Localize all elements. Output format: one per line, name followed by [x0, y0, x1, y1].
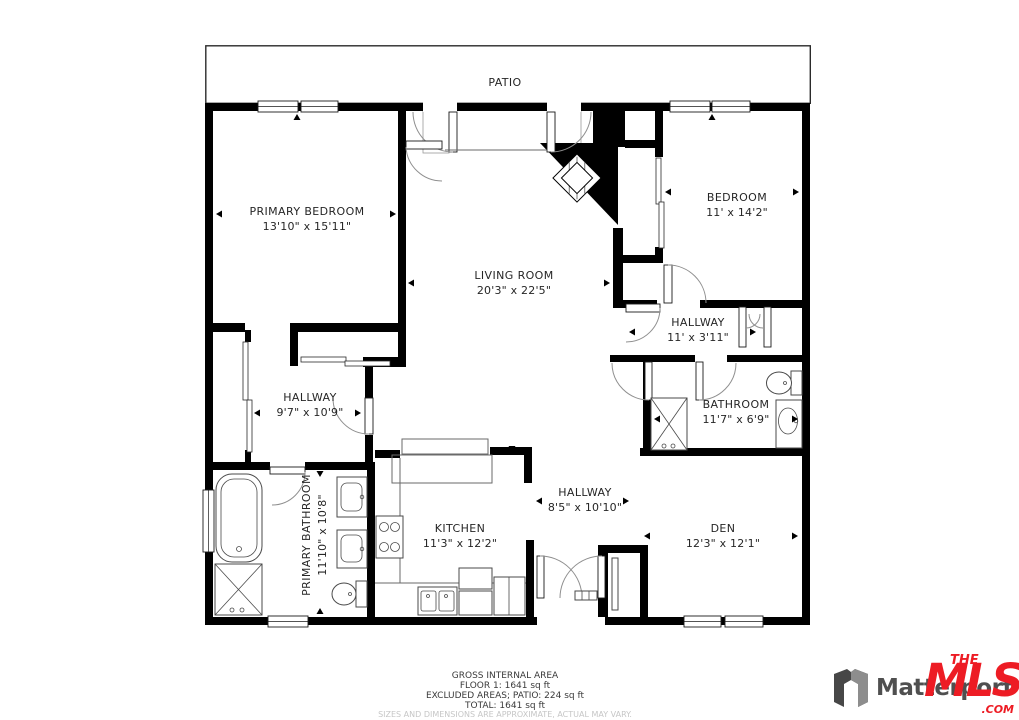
- room-dims-hallway-center: 8'5" x 10'10": [548, 501, 622, 514]
- vanity-hall-bath: [776, 400, 802, 448]
- hallway-west-door: [626, 304, 660, 342]
- footer-disclaimer: SIZES AND DIMENSIONS ARE APPROXIMATE, AC…: [378, 710, 632, 719]
- bathroom-door: [696, 362, 736, 400]
- footer-floor-area: FLOOR 1: 1641 sq ft: [460, 681, 551, 691]
- closet-slider: [659, 202, 664, 248]
- themls-logo: THE MLS ™ .COM: [924, 652, 1018, 718]
- footer-excluded-areas: EXCLUDED AREAS; PATIO: 224 sq ft: [426, 691, 584, 701]
- floor-plan-page: PATIO PRIMARY BEDROOM 13'10" x 15'11" BE…: [0, 0, 1019, 720]
- closet-slider: [345, 361, 390, 366]
- themls-com: .COM: [981, 703, 1014, 716]
- linen-closet-doors: [739, 307, 771, 347]
- room-dims-kitchen: 11'3" x 12'2": [423, 537, 497, 550]
- window: [670, 101, 710, 112]
- den-closet-shelf: [612, 558, 618, 610]
- closet-slider: [656, 158, 661, 204]
- shower-room-door: [612, 362, 652, 400]
- footer-gross-internal-area: GROSS INTERNAL AREA: [452, 671, 559, 681]
- bathtub: [216, 474, 262, 562]
- closet-slider: [247, 400, 252, 452]
- sink: [337, 530, 367, 568]
- kitchen-counters: [375, 439, 526, 583]
- room-label-bathroom: BATHROOM: [703, 398, 770, 411]
- kitchen-sink: [418, 587, 457, 615]
- room-label-hallway-west: HALLWAY: [283, 391, 337, 404]
- room-dims-primary-bathroom: 11'10" x 10'8": [316, 494, 329, 575]
- room-dims-hallway-west: 9'7" x 10'9": [276, 406, 343, 419]
- room-label-hallway-center: HALLWAY: [558, 486, 612, 499]
- room-label-den: DEN: [711, 522, 736, 535]
- room-dims-den: 12'3" x 12'1": [686, 537, 760, 550]
- shower-primary: [215, 564, 262, 615]
- closet-slider: [301, 357, 346, 362]
- stove: [376, 516, 403, 558]
- room-dims-hallway-east: 11' x 3'11": [667, 331, 729, 344]
- entry-double-door: [537, 556, 605, 600]
- breakfast-bar: [402, 439, 488, 454]
- closet-slider: [243, 342, 248, 400]
- toilet-hall-bath: [767, 371, 803, 395]
- dishwasher: [459, 568, 492, 615]
- window: [258, 101, 298, 112]
- window: [203, 490, 214, 552]
- room-label-primary-bedroom: PRIMARY BEDROOM: [249, 205, 364, 218]
- footer-notes: GROSS INTERNAL AREA FLOOR 1: 1641 sq ft …: [378, 671, 632, 719]
- patio-area: [206, 46, 811, 104]
- patio-label: PATIO: [488, 76, 521, 89]
- room-labels: PATIO PRIMARY BEDROOM 13'10" x 15'11" BE…: [249, 76, 769, 596]
- themls-trademark: ™: [1010, 664, 1018, 673]
- sink: [337, 477, 367, 517]
- fridge: [494, 577, 525, 615]
- toilet-primary: [332, 581, 367, 607]
- room-dims-bedroom: 11' x 14'2": [706, 206, 768, 219]
- window: [684, 616, 721, 627]
- matterport-icon: [832, 668, 870, 708]
- floor-plan-svg: PATIO PRIMARY BEDROOM 13'10" x 15'11" BE…: [0, 0, 1019, 720]
- room-dims-bathroom: 11'7" x 6'9": [702, 413, 769, 426]
- themls-main: MLS: [924, 658, 1019, 703]
- window: [712, 101, 750, 112]
- doors-group: [270, 112, 771, 600]
- bedroom-door: [664, 265, 706, 303]
- room-label-bedroom: BEDROOM: [707, 191, 767, 204]
- window: [301, 101, 338, 112]
- room-label-living-room: LIVING ROOM: [474, 269, 553, 282]
- room-label-primary-bathroom: PRIMARY BATHROOM: [300, 474, 313, 596]
- primary-bedroom-door: [406, 141, 442, 181]
- window: [725, 616, 763, 627]
- room-dims-primary-bedroom: 13'10" x 15'11": [263, 220, 352, 233]
- window: [268, 616, 308, 627]
- room-label-hallway-east: HALLWAY: [671, 316, 725, 329]
- room-label-kitchen: KITCHEN: [435, 522, 485, 535]
- shower-hall-bath: [651, 398, 687, 450]
- kitchen-peninsula: [392, 455, 492, 483]
- room-dims-living-room: 20'3" x 22'5": [477, 284, 551, 297]
